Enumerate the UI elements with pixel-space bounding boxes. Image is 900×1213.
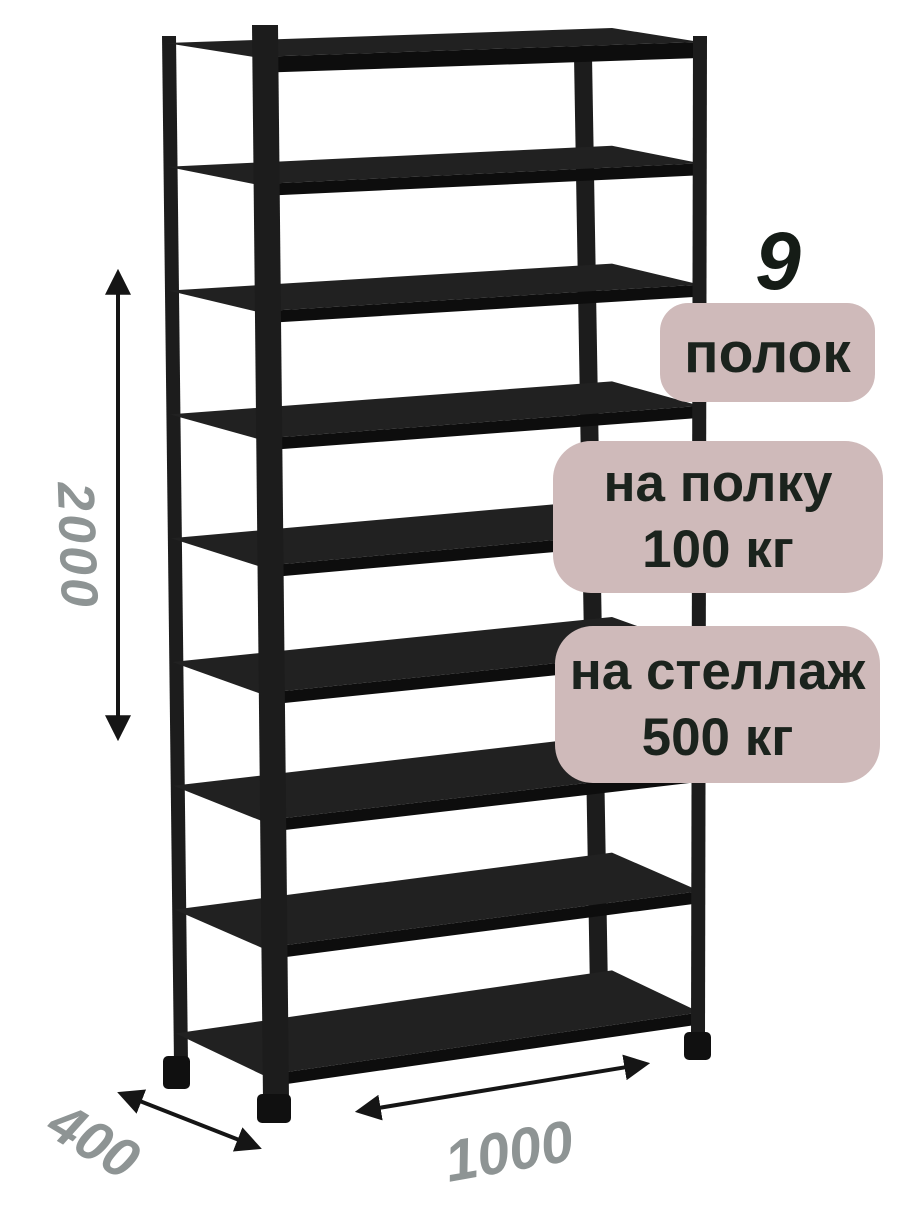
shelving-rack-illustration — [0, 0, 900, 1200]
shelf-count-label: полок — [684, 320, 851, 386]
rack-load-badge: на стеллаж 500 кг — [555, 626, 880, 783]
shelf-load-line2: 100 кг — [642, 517, 794, 583]
height-dimension-label: 2000 — [43, 440, 110, 652]
shelf-load-line1: на полку — [604, 451, 833, 517]
shelf-load-badge: на полку 100 кг — [553, 441, 883, 593]
rack-load-line1: на стеллаж — [570, 639, 866, 705]
product-image: 9 полок на полку 100 кг на стеллаж 500 к… — [0, 0, 900, 1200]
shelf-count-number: 9 — [733, 218, 823, 306]
shelf-count-badge: полок — [660, 303, 875, 402]
rack-load-line2: 500 кг — [642, 705, 794, 771]
